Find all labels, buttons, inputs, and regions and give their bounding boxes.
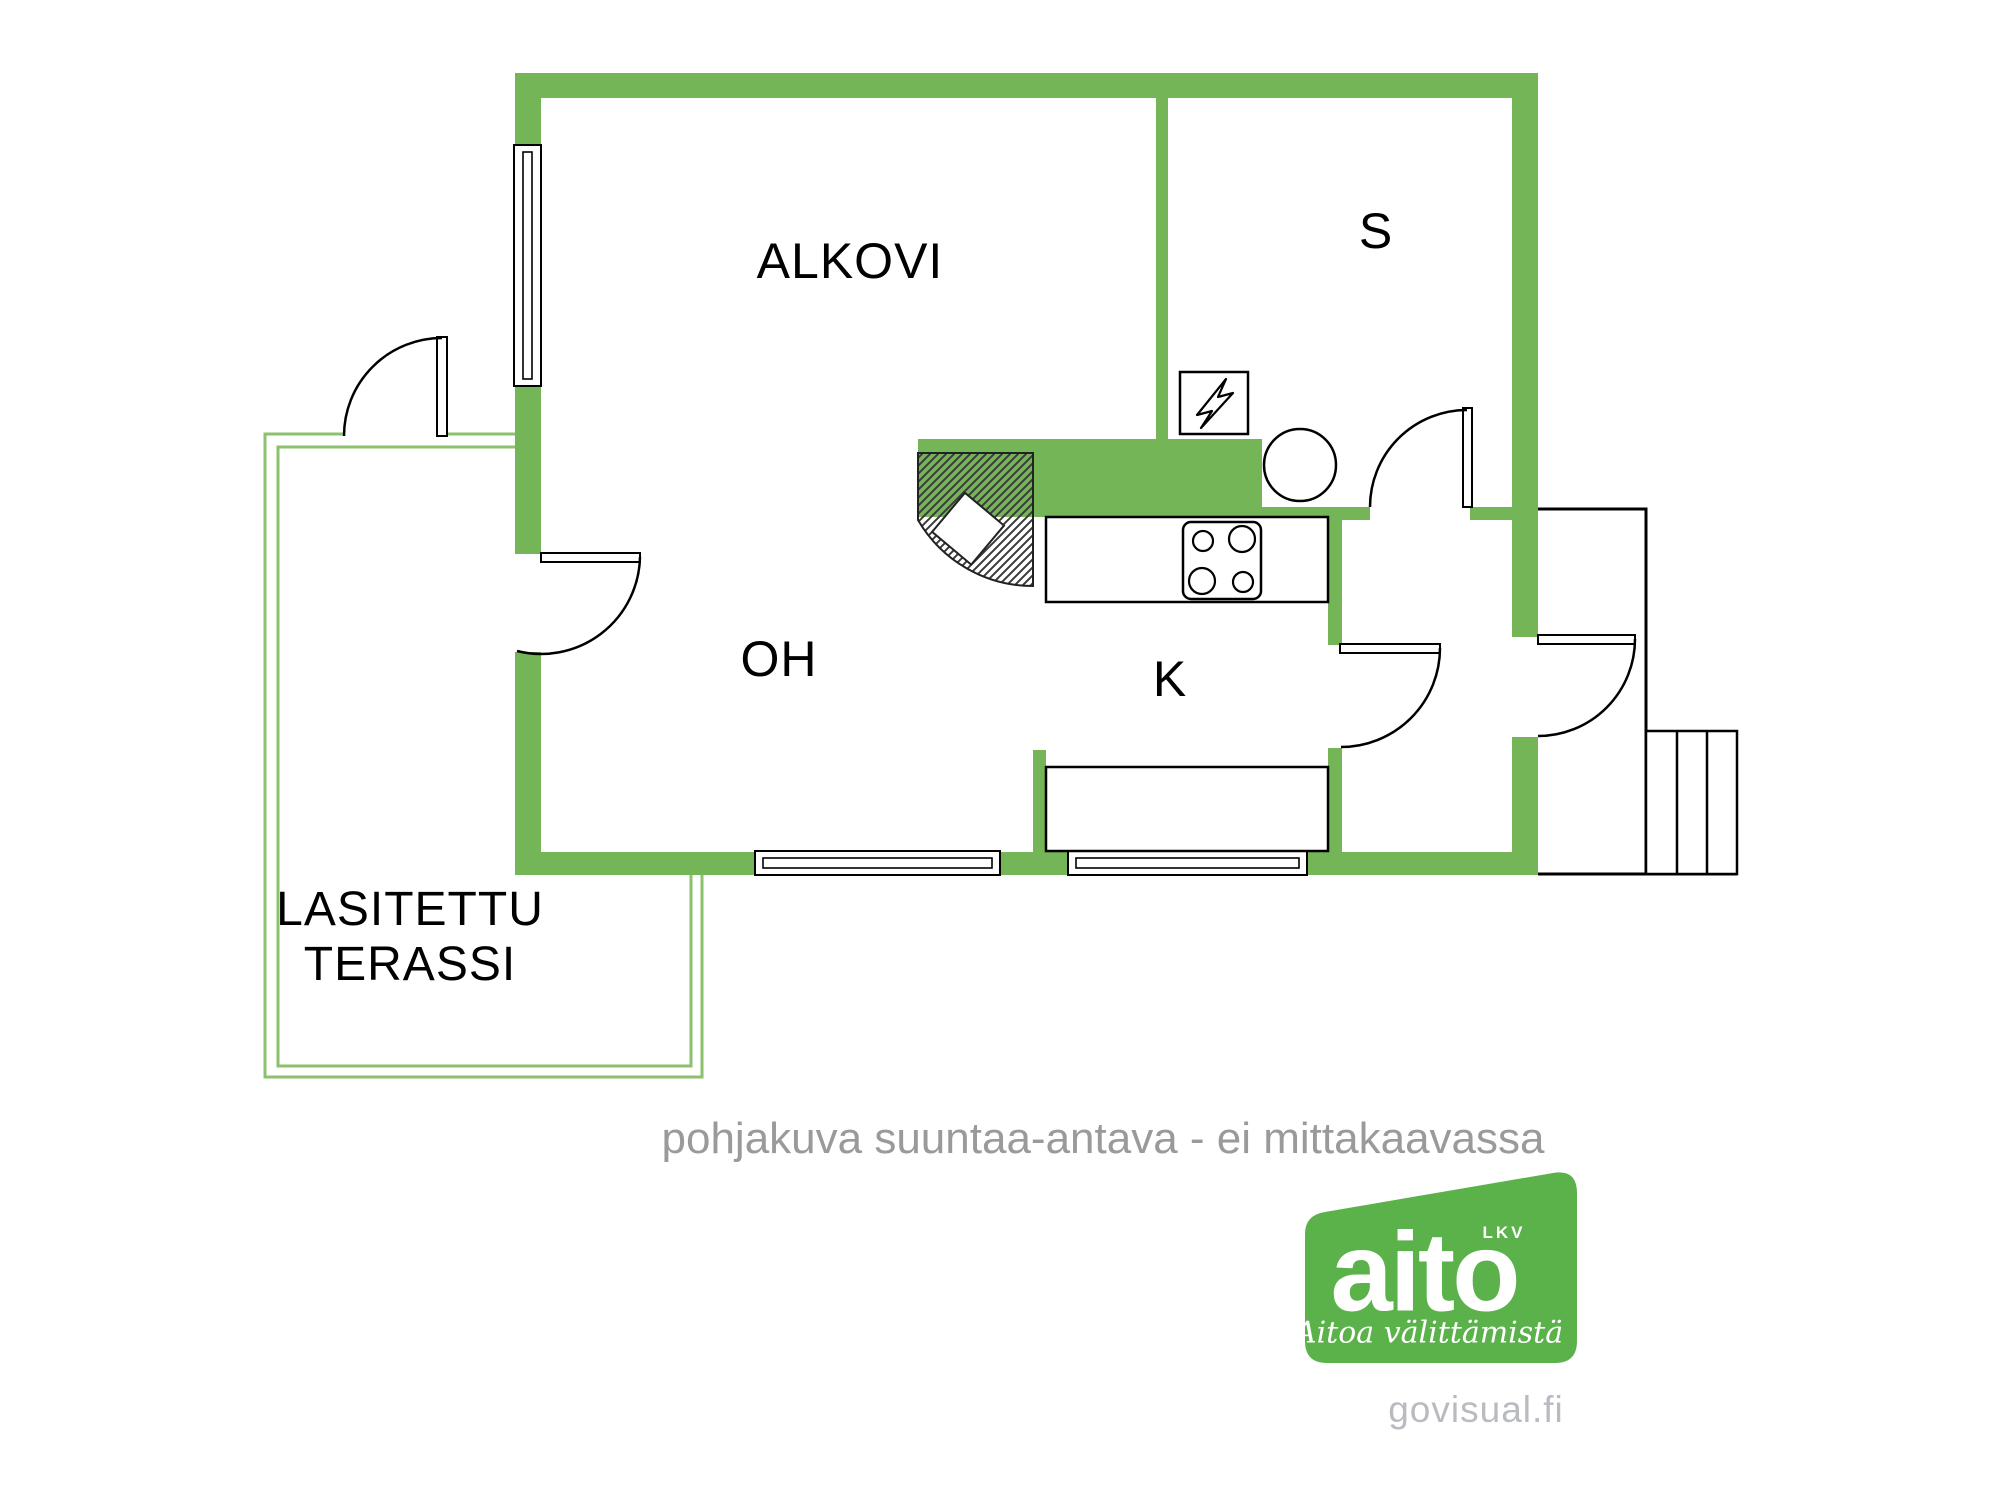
terrace-label-line1: LASITETTU (276, 882, 544, 937)
door-front-icon (1538, 635, 1635, 736)
disclaimer-caption: pohjakuva suuntaa-antava - ei mittakaava… (662, 1114, 1545, 1164)
room-label-alkovi: ALKOVI (757, 232, 944, 290)
kitchen-island (1046, 767, 1328, 851)
stairs-icon (1646, 731, 1737, 874)
room-label-kitchen: K (1153, 650, 1187, 708)
floorplan-page: ALKOVI S OH K LASITETTU TERASSI pohjakuv… (0, 0, 2000, 1500)
room-label-terrace: LASITETTU TERASSI (276, 882, 544, 992)
logo-tagline: Aitoa välittämistä (1295, 1316, 1563, 1351)
floorplan-drawing (0, 0, 2000, 1500)
door-terrace-icon (344, 337, 447, 436)
window-bottom-right-icon (1068, 851, 1307, 875)
electric-heater-icon (1180, 372, 1248, 434)
logo-lkv-badge: LKV (1483, 1223, 1526, 1243)
window-bottom-left-icon (755, 851, 1000, 875)
room-label-living-room: OH (741, 630, 818, 688)
stove-icon (1183, 522, 1261, 599)
terrace-label-line2: TERASSI (276, 937, 544, 992)
room-label-sauna: S (1359, 202, 1393, 260)
water-heater-icon (1264, 429, 1336, 501)
window-left-icon (514, 145, 541, 386)
website-text: govisual.fi (1388, 1389, 1564, 1431)
